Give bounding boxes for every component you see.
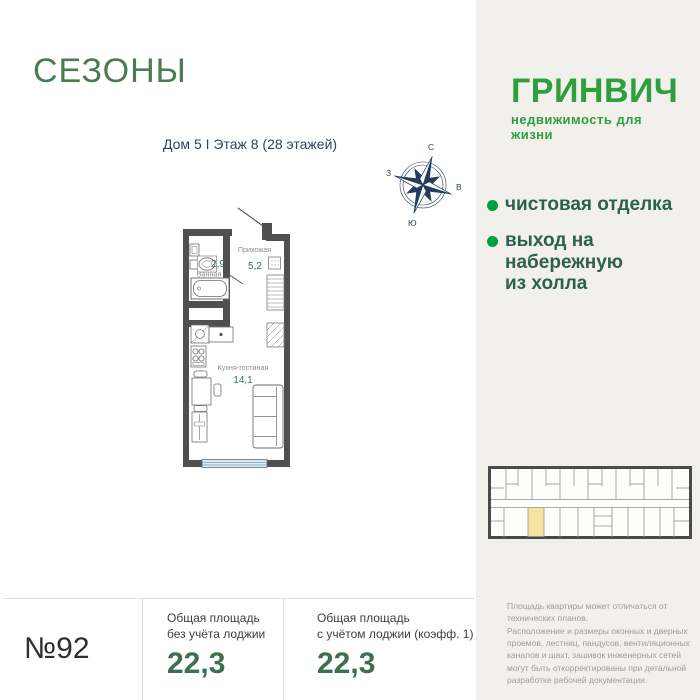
metric-total-area-with-loggia: Общая площадь с учётом лоджии (коэфф. 1)…	[317, 611, 473, 681]
room-name-hallway: Прихожая	[238, 245, 271, 254]
wardrobe-icon	[267, 275, 284, 310]
room-area-bathroom: 2,9	[211, 259, 225, 270]
metric-label: Общая площадь без учёта лоджии	[167, 611, 265, 642]
toilet-icon	[190, 260, 198, 269]
room-area-kitchen-living: 14,1	[233, 375, 253, 386]
flyer-canvas: СЕЗОНЫ Дом 5 I Этаж 8 (28 этажей) С З В …	[0, 0, 700, 700]
summary-divider	[283, 598, 284, 700]
summary-divider	[4, 598, 474, 599]
chair-icon	[194, 406, 207, 412]
project-logo: СЕЗОНЫ	[33, 52, 187, 91]
developer-tagline: недвижимость для жизни	[511, 112, 675, 142]
room-name-bathroom: Ванная	[197, 270, 222, 279]
compass-east-label: В	[456, 182, 462, 192]
entry-door-leader-line	[238, 208, 263, 226]
feature-item: чистовая отделка	[487, 194, 677, 215]
apartment-number: №92	[24, 632, 90, 666]
bullet-icon	[487, 200, 498, 211]
bullet-icon	[487, 236, 498, 247]
window	[202, 460, 267, 468]
hallway-cabinet-icon	[269, 257, 281, 269]
summary-divider	[142, 598, 143, 700]
disclaimer-text: Площадь квартиры может отличаться от тех…	[507, 600, 691, 686]
developer-name: ГРИНВИЧ	[511, 74, 675, 108]
feature-item: выход на набережную из холла	[487, 230, 677, 294]
building-floor-line: Дом 5 I Этаж 8 (28 этажей)	[163, 136, 337, 152]
compass-south-label: Ю	[408, 218, 417, 228]
feature-text: выход на набережную из холла	[505, 230, 623, 294]
building-floor-overview	[488, 466, 692, 539]
kitchen-sink-icon	[196, 330, 205, 339]
feature-text: чистовая отделка	[505, 194, 672, 215]
compass-west-label: З	[386, 168, 391, 178]
apartment-floorplan: Прихожая 5,2 2,9 Ванная Кухня-гостиная 1…	[181, 204, 293, 470]
feature-list: чистовая отделка выход на набережную из …	[487, 194, 677, 310]
metric-value: 22,3	[167, 647, 265, 681]
table-icon	[192, 378, 211, 405]
developer-logo: ГРИНВИЧ недвижимость для жизни	[511, 74, 675, 142]
chair-icon	[194, 371, 207, 377]
chair-icon	[214, 384, 221, 396]
metric-label: Общая площадь с учётом лоджии (коэфф. 1)	[317, 611, 473, 642]
metric-total-area: Общая площадь без учёта лоджии 22,3	[167, 611, 265, 681]
current-unit-highlight	[528, 508, 544, 537]
room-name-kitchen-living: Кухня-гостиная	[218, 363, 269, 372]
room-area-hallway: 5,2	[248, 261, 262, 272]
compass-icon: С З В Ю	[383, 133, 471, 231]
metric-value: 22,3	[317, 647, 473, 681]
compass-north-label: С	[428, 142, 434, 152]
